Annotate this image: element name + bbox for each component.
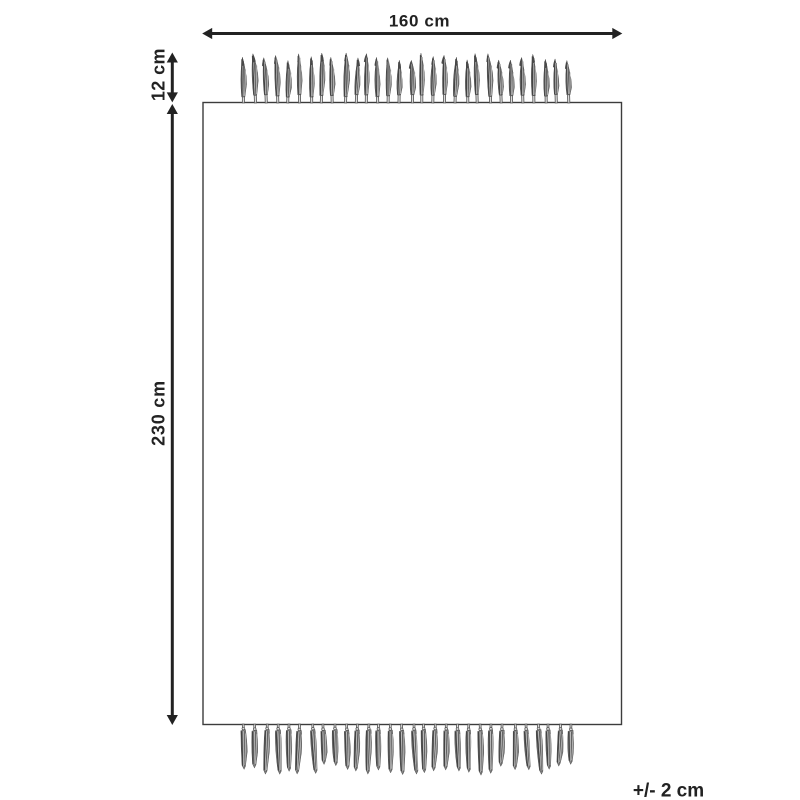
svg-text:12 cm: 12 cm <box>149 48 169 101</box>
svg-text:+/- 2 cm: +/- 2 cm <box>633 781 704 800</box>
svg-text:230 cm: 230 cm <box>149 380 169 446</box>
svg-text:160 cm: 160 cm <box>389 12 450 31</box>
